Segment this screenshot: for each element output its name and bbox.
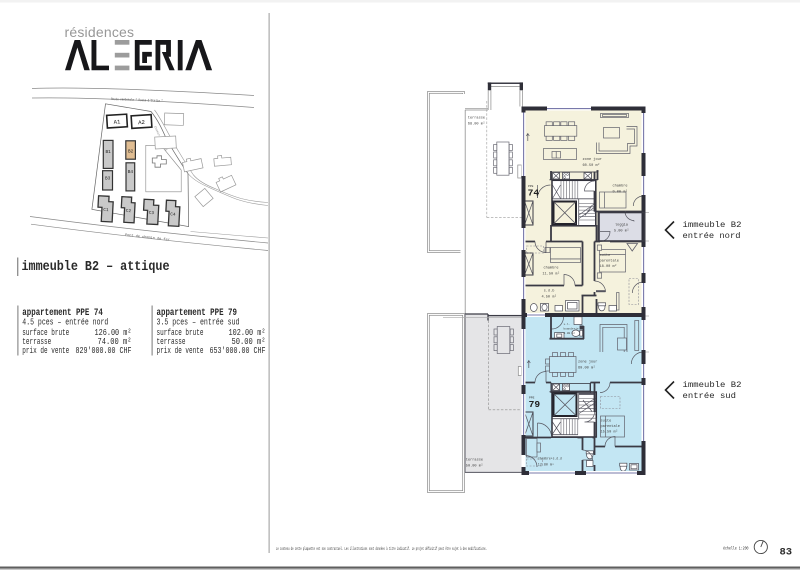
svg-text:B4: B4 bbox=[128, 170, 134, 175]
svg-text:C2: C2 bbox=[126, 209, 132, 214]
svg-text:C3: C3 bbox=[149, 211, 155, 216]
svg-text:zone jour: zone jour bbox=[578, 360, 597, 365]
svg-text:653'000.00 CHF: 653'000.00 CHF bbox=[210, 346, 266, 356]
svg-text:74: 74 bbox=[528, 188, 540, 199]
svg-text:11.50 m²: 11.50 m² bbox=[542, 273, 559, 277]
svg-text:Le contenu de cette plaquette: Le contenu de cette plaquette est non co… bbox=[276, 546, 487, 552]
svg-text:prix de vente: prix de vente bbox=[22, 346, 69, 356]
svg-text:18.00 m²: 18.00 m² bbox=[600, 265, 617, 269]
svg-text:immeuble B2: immeuble B2 bbox=[683, 220, 742, 230]
svg-text:A2: A2 bbox=[138, 119, 145, 126]
svg-text:terrasse: terrasse bbox=[468, 116, 485, 121]
svg-text:parentale: parentale bbox=[601, 424, 620, 429]
svg-text:60.50 m²: 60.50 m² bbox=[583, 164, 600, 168]
svg-text:9.00 m²: 9.00 m² bbox=[612, 191, 627, 195]
svg-text:loggia: loggia bbox=[615, 223, 629, 228]
svg-text:buanderie: buanderie bbox=[564, 327, 579, 331]
svg-text:3.00 m²: 3.00 m² bbox=[564, 332, 576, 335]
svg-text:entrée nord: entrée nord bbox=[683, 231, 741, 241]
svg-text:chambre+s.d.d: chambre+s.d.d bbox=[538, 457, 562, 462]
svg-text:suite: suite bbox=[601, 419, 612, 424]
svg-text:zone jour: zone jour bbox=[583, 157, 602, 162]
svg-text:68.00 m²: 68.00 m² bbox=[468, 123, 485, 127]
svg-text:B2: B2 bbox=[128, 150, 134, 155]
svg-text:B3: B3 bbox=[105, 177, 111, 182]
svg-text:s.d.b: s.d.b bbox=[544, 289, 555, 294]
svg-text:B1: B1 bbox=[106, 150, 112, 155]
svg-text:5.00 m²: 5.00 m² bbox=[614, 230, 629, 234]
svg-text:parentale: parentale bbox=[600, 259, 619, 264]
svg-text:immeuble B2: immeuble B2 bbox=[683, 380, 742, 390]
svg-text:4.50 m²: 4.50 m² bbox=[541, 296, 556, 300]
svg-text:15.50 m²: 15.50 m² bbox=[601, 431, 618, 435]
svg-text:A1: A1 bbox=[114, 118, 122, 125]
svg-text:résidences: résidences bbox=[65, 24, 135, 40]
svg-text:chambre: chambre bbox=[543, 266, 558, 271]
svg-text:50.00 m²: 50.00 m² bbox=[466, 465, 483, 469]
svg-text:60.00 m²: 60.00 m² bbox=[578, 367, 595, 371]
svg-text:échelle 1:200: échelle 1:200 bbox=[723, 546, 749, 552]
svg-text:entrée sud: entrée sud bbox=[683, 391, 737, 401]
svg-text:4.5 pces – entrée nord: 4.5 pces – entrée nord bbox=[22, 317, 108, 328]
svg-text:829'000.00 CHF: 829'000.00 CHF bbox=[76, 346, 132, 356]
svg-text:79: 79 bbox=[529, 399, 541, 410]
svg-text:immeuble B2 – attique: immeuble B2 – attique bbox=[22, 259, 170, 275]
svg-text:suite: suite bbox=[600, 253, 611, 258]
svg-text:12.80 m²: 12.80 m² bbox=[538, 464, 554, 468]
svg-text:chambre: chambre bbox=[612, 184, 627, 189]
svg-text:C4: C4 bbox=[170, 212, 176, 217]
svg-text:prix de vente: prix de vente bbox=[157, 346, 204, 356]
svg-text:83: 83 bbox=[780, 547, 793, 559]
svg-text:terrasse: terrasse bbox=[466, 458, 483, 463]
svg-text:C1: C1 bbox=[103, 208, 109, 213]
svg-text:3.5 pces – entrée sud: 3.5 pces – entrée sud bbox=[157, 317, 240, 328]
svg-text:s.l.: s.l. bbox=[564, 322, 571, 326]
